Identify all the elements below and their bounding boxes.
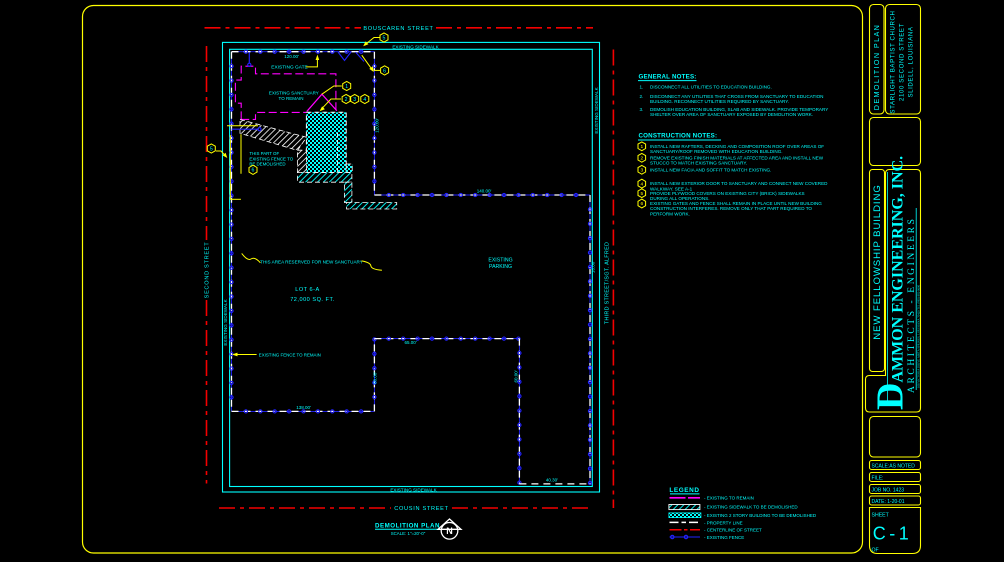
svg-text:C-1: C-1	[873, 524, 913, 544]
svg-text:CONSTRUCTION NOTES:: CONSTRUCTION NOTES:	[639, 133, 718, 140]
svg-text:THIS AREA RESERVED FOR NEW SAN: THIS AREA RESERVED FOR NEW SANCTUARY	[260, 260, 363, 265]
svg-text:JOB NO. 1423: JOB NO. 1423	[872, 488, 905, 494]
svg-text:4: 4	[363, 97, 366, 103]
svg-text:EXISTING SIDEWALK: EXISTING SIDEWALK	[223, 298, 228, 345]
svg-text:SHELTER OVER AREA OF SANCTUARY: SHELTER OVER AREA OF SANCTUARY EXPOSED B…	[650, 112, 813, 117]
svg-text:DEMOLITION PLAN: DEMOLITION PLAN	[375, 522, 440, 529]
svg-text:2100 SECOND STREET: 2100 SECOND STREET	[899, 23, 906, 101]
svg-text:- PROPERTY LINE: - PROPERTY LINE	[704, 520, 743, 525]
svg-text:60.00': 60.00'	[513, 370, 518, 382]
svg-text:BUILDING. RECONNECT UTILITIES: BUILDING. RECONNECT UTILITIES REQUIRED B…	[650, 99, 789, 104]
svg-text:COUSIN STREET: COUSIN STREET	[394, 506, 448, 512]
svg-text:STARLIGHT BAPTIST CHURCH: STARLIGHT BAPTIST CHURCH	[890, 10, 897, 113]
svg-text:SCALE: 1"=20'-0": SCALE: 1"=20'-0"	[391, 531, 426, 536]
svg-text:1: 1	[345, 84, 348, 90]
svg-text:BOUSCAREN STREET: BOUSCAREN STREET	[363, 26, 433, 32]
svg-text:EXISTING: EXISTING	[488, 257, 512, 263]
svg-text:LEGEND: LEGEND	[669, 487, 699, 494]
svg-text:1.: 1.	[640, 84, 644, 89]
svg-text:N: N	[446, 526, 453, 536]
svg-text:PARKING: PARKING	[489, 264, 512, 270]
svg-text:6: 6	[383, 68, 386, 74]
svg-text:EXISTING SIDEWALK: EXISTING SIDEWALK	[390, 487, 437, 492]
svg-text:140.00': 140.00'	[477, 188, 492, 193]
svg-text:120.00': 120.00'	[374, 118, 379, 133]
svg-text:60.00': 60.00'	[373, 372, 378, 384]
svg-text:5: 5	[640, 191, 643, 197]
svg-text:FILE:: FILE:	[872, 476, 884, 482]
svg-text:LOT 6-A: LOT 6-A	[295, 287, 320, 293]
svg-text:SHEET: SHEET	[872, 513, 890, 519]
svg-text:EXISTING FENCE TO REMAIN: EXISTING FENCE TO REMAIN	[259, 352, 321, 357]
svg-text:3: 3	[353, 97, 356, 103]
svg-text:DATE: 1-20-01: DATE: 1-20-01	[872, 499, 905, 505]
svg-text:EXISTING GATE: EXISTING GATE	[271, 65, 307, 71]
svg-text:EXISTING SIDEWALK: EXISTING SIDEWALK	[392, 45, 439, 50]
svg-text:1: 1	[640, 144, 643, 150]
svg-text:3: 3	[640, 168, 643, 174]
svg-text:2: 2	[345, 97, 348, 103]
svg-text:EXISTING SANCTUARY: EXISTING SANCTUARY	[269, 90, 319, 95]
svg-text:NEW FELLOWSHIP BUILDING: NEW FELLOWSHIP BUILDING	[872, 184, 883, 339]
svg-text:- EXISTING 2 STORY BUILDING T: - EXISTING 2 STORY BUILDING TO BE DEMOLI…	[704, 513, 817, 518]
svg-text:SLIDELL, LOUISIANA: SLIDELL, LOUISIANA	[908, 26, 915, 97]
svg-text:DEMOLITION PLAN: DEMOLITION PLAN	[872, 24, 881, 111]
svg-text:EXISTING SIDEWALK: EXISTING SIDEWALK	[594, 86, 599, 133]
svg-text:120.00': 120.00'	[284, 54, 299, 59]
svg-text:PERFORM WORK.: PERFORM WORK.	[650, 211, 690, 216]
svg-text:3.: 3.	[640, 107, 644, 112]
svg-text:4: 4	[640, 181, 643, 187]
svg-text:TO REMAIN: TO REMAIN	[279, 96, 304, 101]
svg-text:SANCTUARY/ROOF REMOVED WITH ED: SANCTUARY/ROOF REMOVED WITH EDUCATION BU…	[650, 149, 783, 154]
svg-text:- EXISTING SIDEWALK TO BE DEM: - EXISTING SIDEWALK TO BE DEMOLISHED	[704, 504, 798, 509]
svg-text:SCALE:AS NOTED: SCALE:AS NOTED	[872, 464, 916, 470]
svg-text:- CENTERLINE OF STREET: - CENTERLINE OF STREET	[704, 528, 762, 533]
svg-text:THIRD STREET/SGT. ALFRED: THIRD STREET/SGT. ALFRED	[605, 242, 611, 324]
svg-text:65.00': 65.00'	[404, 340, 416, 345]
svg-text:SECOND STREET: SECOND STREET	[205, 242, 211, 299]
svg-text:- EXISTING TO REMAIN: - EXISTING TO REMAIN	[704, 496, 754, 501]
svg-text:OF: OF	[872, 548, 879, 554]
svg-text:6: 6	[640, 201, 643, 207]
svg-text:5: 5	[210, 146, 213, 152]
svg-text:- EXISTING FENCE: - EXISTING FENCE	[704, 535, 744, 540]
svg-text:DISCONNECT ALL UTILITIES TO ED: DISCONNECT ALL UTILITIES TO EDUCATION BU…	[650, 84, 772, 89]
svg-text:GENERAL NOTES:: GENERAL NOTES:	[639, 73, 697, 80]
svg-text:INSTALL NEW FACIA AND SOFFIT T: INSTALL NEW FACIA AND SOFFIT TO MATCH EX…	[650, 167, 771, 172]
svg-text:6: 6	[252, 168, 255, 174]
svg-text:72,000 SQ. FT.: 72,000 SQ. FT.	[290, 297, 335, 303]
svg-text:5: 5	[383, 35, 386, 41]
svg-text:138.00': 138.00'	[296, 405, 311, 410]
svg-text:18.00': 18.00'	[591, 261, 596, 273]
svg-text:40.30': 40.30'	[546, 478, 558, 483]
svg-text:STUCCO TO MATCH EXISTING SANCT: STUCCO TO MATCH EXISTING SANCTUARY.	[650, 161, 747, 166]
svg-text:2: 2	[640, 156, 643, 162]
svg-text:2.: 2.	[640, 94, 644, 99]
svg-text:ARCHITECTS - ENGINEERS: ARCHITECTS - ENGINEERS	[907, 217, 917, 393]
